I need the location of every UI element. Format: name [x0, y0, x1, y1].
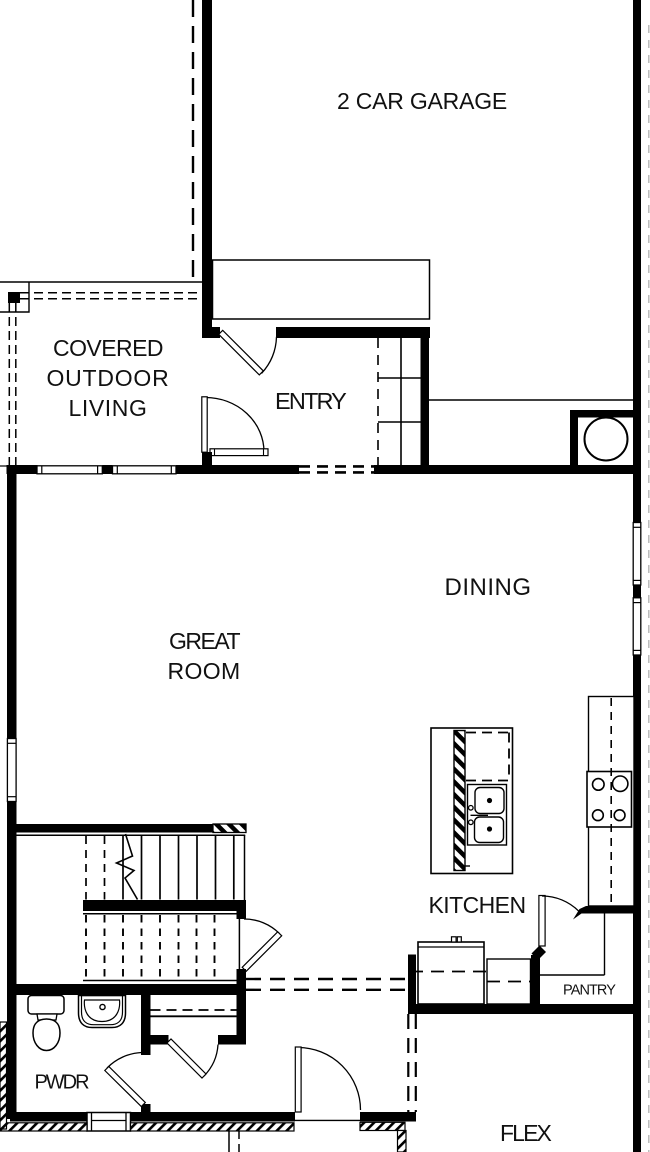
svg-text:DINING: DINING	[445, 574, 532, 601]
svg-text:PWDR: PWDR	[35, 1072, 90, 1094]
svg-text:FLEX: FLEX	[500, 1120, 552, 1146]
svg-text:OUTDOOR: OUTDOOR	[47, 365, 170, 391]
svg-text:COVERED: COVERED	[53, 335, 163, 361]
svg-text:PANTRY: PANTRY	[563, 983, 616, 999]
svg-text:ENTRY: ENTRY	[275, 388, 347, 414]
svg-text:ROOM: ROOM	[168, 658, 241, 684]
svg-text:GREAT: GREAT	[169, 628, 240, 654]
svg-text:2 CAR GARAGE: 2 CAR GARAGE	[337, 88, 507, 114]
svg-text:KITCHEN: KITCHEN	[428, 892, 525, 918]
svg-text:LIVING: LIVING	[68, 395, 147, 421]
